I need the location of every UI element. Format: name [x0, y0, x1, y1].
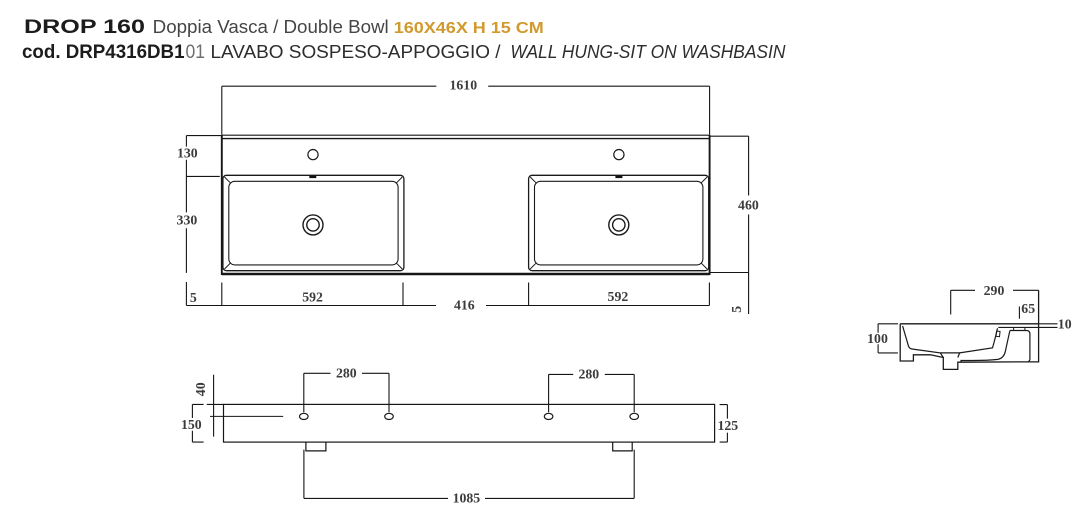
svg-text:280: 280: [578, 367, 599, 382]
svg-text:592: 592: [608, 289, 629, 304]
svg-text:40: 40: [193, 382, 208, 396]
svg-text:416: 416: [454, 298, 475, 313]
svg-text:150: 150: [181, 417, 202, 432]
svg-text:1610: 1610: [450, 77, 478, 92]
svg-text:280: 280: [336, 366, 357, 381]
svg-text:LAVABO SOSPESO-APPOGGIO /: LAVABO SOSPESO-APPOGGIO /: [211, 41, 502, 62]
svg-text:WALL HUNG-SIT ON WASHBASIN: WALL HUNG-SIT ON WASHBASIN: [510, 41, 786, 62]
svg-text:01: 01: [186, 42, 206, 63]
svg-text:100: 100: [867, 331, 888, 346]
svg-text:5: 5: [729, 306, 744, 313]
svg-text:460: 460: [738, 197, 759, 212]
svg-text:330: 330: [177, 213, 198, 228]
svg-text:160X46X H 15 CM: 160X46X H 15 CM: [394, 20, 544, 37]
svg-text:10: 10: [1058, 317, 1072, 332]
svg-text:1085: 1085: [453, 491, 481, 506]
svg-text:DROP 160: DROP 160: [24, 16, 145, 38]
svg-text:290: 290: [984, 283, 1005, 298]
svg-text:5: 5: [190, 290, 197, 305]
svg-text:130: 130: [177, 146, 198, 161]
svg-text:cod. DRP4316DB1: cod. DRP4316DB1: [22, 42, 185, 63]
svg-text:592: 592: [302, 290, 323, 305]
svg-text:Doppia Vasca / Double Bowl: Doppia Vasca / Double Bowl: [153, 16, 389, 37]
svg-text:125: 125: [717, 418, 738, 433]
svg-text:65: 65: [1021, 301, 1035, 316]
